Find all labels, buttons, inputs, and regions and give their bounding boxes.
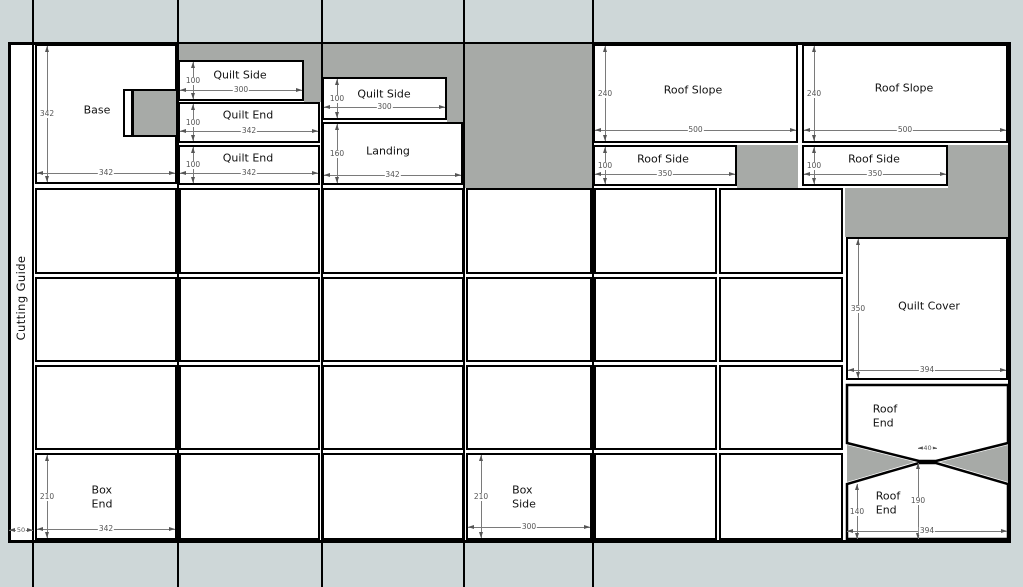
dim-arrow-right (584, 525, 590, 529)
dim-arrow-left (804, 172, 810, 176)
dim-value: 350 (867, 170, 883, 178)
dim-arrow-right (296, 88, 302, 92)
dim-arrow-right (1000, 128, 1006, 132)
piece-label-base: Base (84, 103, 111, 117)
dim-arrow-up (191, 104, 195, 110)
piece-label-box-end: Box End (92, 484, 113, 511)
dim-value: 100 (806, 162, 822, 170)
blank-panel (594, 453, 717, 540)
dim-arrow-down (191, 135, 195, 141)
dim-value: 350 (850, 305, 866, 313)
dim-arrow-up (812, 46, 816, 52)
dim-arrow-right (1000, 368, 1006, 372)
dim-arrow-left (37, 171, 43, 175)
piece-quilt-cover: Quilt Cover350394 (846, 237, 1008, 380)
dim-value: 190 (910, 497, 926, 505)
dim-value: 100 (185, 161, 201, 169)
cutting-guide-diagram: Cutting Guide Base342342Quilt Side100300… (0, 0, 1023, 587)
dim-arrow-down (45, 176, 49, 182)
blank-panel (35, 365, 177, 450)
dim-arrow-up (45, 455, 49, 461)
dim-arrow-down (855, 533, 859, 539)
cut-line (32, 0, 34, 587)
blank-panel (322, 453, 464, 540)
blank-panel (179, 365, 320, 450)
waste-region (948, 145, 1008, 188)
dim-value: 240 (597, 90, 613, 98)
dim-value: 100 (597, 162, 613, 170)
dim-arrow-right (169, 171, 175, 175)
piece-label-quilt-side-2: Quilt Side (357, 87, 410, 101)
dim-arrow-left (180, 129, 186, 133)
dim-value: 300 (521, 523, 537, 531)
dim-value: 394 (919, 366, 935, 374)
blank-panel (179, 453, 320, 540)
blank-panel (594, 277, 717, 362)
piece-roof-slope-2: Roof Slope240500 (802, 44, 1008, 143)
dim-value: 500 (687, 126, 703, 134)
dim-arrow-up (191, 62, 195, 68)
piece-label-roof-side-1: Roof Side (637, 152, 689, 166)
piece-quilt-side-1: Quilt Side100300 (178, 60, 304, 101)
dim-arrow-down (45, 532, 49, 538)
dim-arrow-right (940, 172, 946, 176)
dim-arrow-up (603, 46, 607, 52)
dim-arrow-left (324, 105, 330, 109)
dim-value: 50 (16, 526, 26, 534)
blank-panel (466, 277, 592, 362)
dim-arrow-up (603, 147, 607, 153)
piece-label-landing: Landing (366, 144, 410, 158)
piece-label-roof-end-top: Roof End (873, 403, 897, 430)
blank-panel (35, 277, 177, 362)
piece-label-quilt-cover: Quilt Cover (898, 299, 960, 313)
piece-quilt-end-2: Quilt End100342 (178, 145, 320, 185)
piece-roof-side-1: Roof Side100350 (593, 145, 737, 186)
blank-panel (594, 188, 717, 274)
dim-arrow-left (468, 525, 474, 529)
dim-arrow-left (804, 128, 810, 132)
dim-value: 342 (241, 127, 257, 135)
dim-value: 350 (657, 170, 673, 178)
dim-arrow-up (479, 455, 483, 461)
dim-arrow-left (324, 173, 330, 177)
dim-arrow-down (335, 177, 339, 183)
dim-arrow-left (9, 528, 15, 532)
blank-panel (322, 277, 464, 362)
dim-arrow-up (855, 484, 859, 490)
dim-value: 300 (376, 103, 392, 111)
dim-value: 500 (897, 126, 913, 134)
dim-arrow-right (312, 129, 318, 133)
cutting-guide-label: Cutting Guide (14, 256, 28, 341)
dim-value: 342 (241, 169, 257, 177)
dim-arrow-up (335, 79, 339, 85)
dim-value: 342 (98, 525, 114, 533)
piece-roof-side-2: Roof Side100350 (802, 145, 948, 186)
dim-arrow-down (191, 93, 195, 99)
dim-arrow-left (595, 128, 601, 132)
waste-region (322, 44, 464, 77)
dim-value: 160 (329, 150, 345, 158)
dim-value: 140 (849, 508, 865, 516)
dim-arrow-down (603, 178, 607, 184)
dim-value: 210 (39, 493, 55, 501)
piece-label-quilt-end-2: Quilt End (223, 151, 273, 165)
dim-arrow-down (191, 177, 195, 183)
waste-region (737, 145, 798, 188)
base-notch-waste (132, 89, 178, 137)
waste-region (845, 188, 1008, 237)
piece-quilt-side-2: Quilt Side100300 (322, 77, 447, 120)
blank-panel (179, 277, 320, 362)
blank-panel (179, 188, 320, 274)
blank-panel (719, 188, 843, 274)
piece-roof-slope-1: Roof Slope240500 (593, 44, 798, 143)
piece-label-roof-slope-2: Roof Slope (875, 81, 934, 95)
blank-panel (466, 365, 592, 450)
dim-arrow-up (335, 124, 339, 130)
dim-value: 300 (233, 86, 249, 94)
base-notch-offcut (123, 89, 133, 137)
dim-arrow-left (847, 529, 853, 533)
waste-region (447, 77, 464, 122)
dim-arrow-left (180, 171, 186, 175)
dim-arrow-down (812, 135, 816, 141)
dim-arrow-down (856, 372, 860, 378)
dim-arrow-up (916, 463, 920, 469)
dim-arrow-down (603, 135, 607, 141)
blank-panel (719, 277, 843, 362)
dim-arrow-right (790, 128, 796, 132)
dim-value: 394 (919, 527, 935, 535)
dim-arrow-up (856, 239, 860, 245)
piece-label-roof-slope-1: Roof Slope (664, 83, 723, 97)
dim-value: 342 (384, 171, 400, 179)
dim-value: 210 (473, 493, 489, 501)
waste-region (178, 44, 322, 60)
dim-arrow-left (37, 527, 43, 531)
waste-region (464, 44, 593, 188)
dim-arrow-right (729, 172, 735, 176)
dim-arrow-up (191, 147, 195, 153)
dim-value: 100 (185, 77, 201, 85)
dim-value: 40 (922, 444, 932, 452)
waste-region (304, 60, 322, 102)
dim-arrow-left (595, 172, 601, 176)
blank-panel (466, 188, 592, 274)
piece-label-roof-end-bottom: Roof End (876, 490, 900, 517)
dim-value: 342 (39, 110, 55, 118)
blank-panel (594, 365, 717, 450)
dim-arrow-right (27, 528, 33, 532)
piece-label-roof-side-2: Roof Side (848, 152, 900, 166)
dim-arrow-down (335, 112, 339, 118)
dim-arrow-left (180, 88, 186, 92)
blank-panel (322, 365, 464, 450)
dim-arrow-up (812, 147, 816, 153)
piece-label-box-side: Box Side (512, 484, 536, 511)
blank-panel (322, 188, 464, 274)
dim-arrow-right (169, 527, 175, 531)
piece-label-quilt-end-1: Quilt End (223, 108, 273, 122)
blank-panel (35, 188, 177, 274)
dim-value: 342 (98, 169, 114, 177)
piece-box-end: Box End210342 (35, 453, 177, 540)
dim-value: 240 (806, 90, 822, 98)
dim-arrow-right (439, 105, 445, 109)
piece-quilt-end-1: Quilt End100342 (178, 102, 320, 143)
dim-value: 100 (185, 119, 201, 127)
blank-panel (719, 453, 843, 540)
blank-panel (719, 365, 843, 450)
dim-arrow-up (45, 46, 49, 52)
piece-landing: Landing160342 (322, 122, 463, 185)
dim-arrow-left (848, 368, 854, 372)
dim-value: 100 (329, 95, 345, 103)
piece-label-quilt-side-1: Quilt Side (213, 68, 266, 82)
dim-arrow-right (455, 173, 461, 177)
piece-box-side: Box Side210300 (466, 453, 592, 540)
dim-arrow-down (812, 178, 816, 184)
dim-arrow-right (1001, 529, 1007, 533)
dim-arrow-down (479, 532, 483, 538)
dim-arrow-right (312, 171, 318, 175)
